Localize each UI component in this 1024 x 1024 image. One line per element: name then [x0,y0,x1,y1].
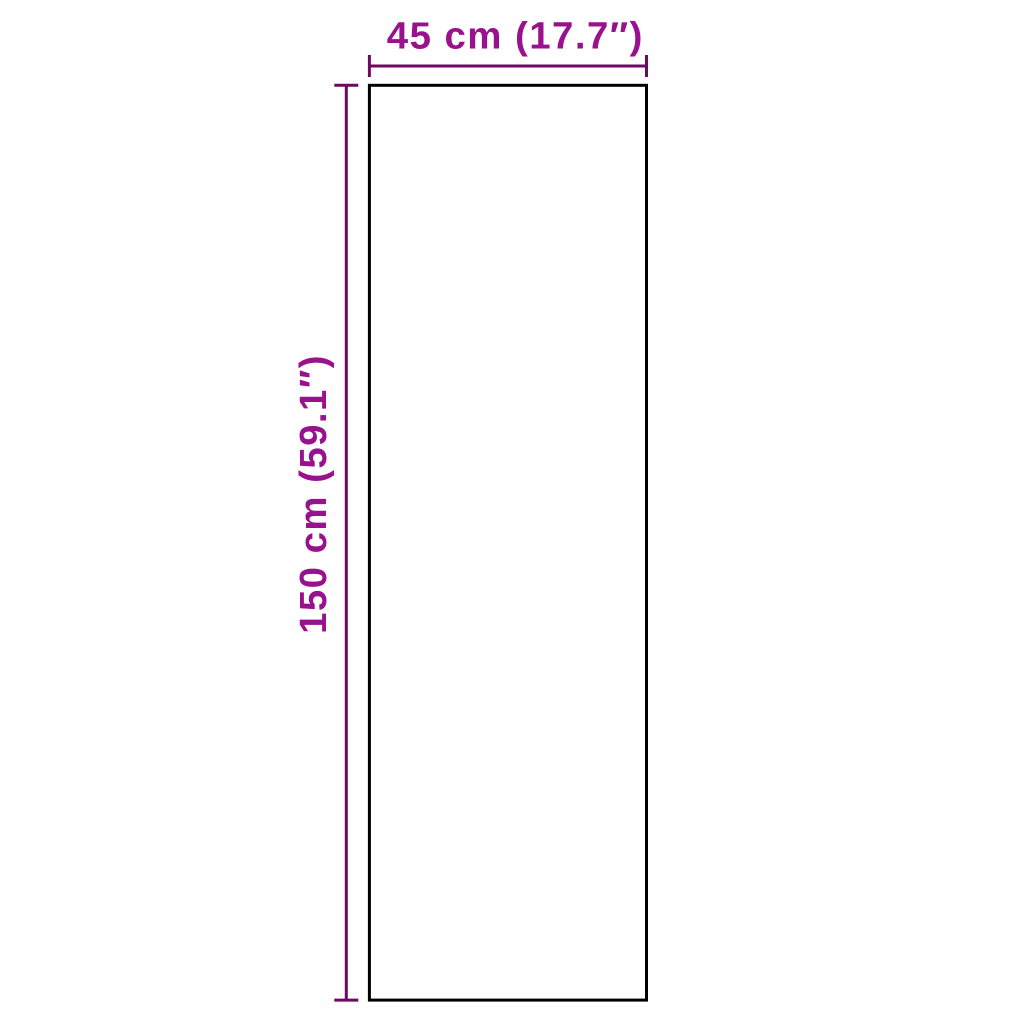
svg-text:45 cm (17.7″): 45 cm (17.7″) [387,15,644,58]
svg-text:150 cm (59.1″): 150 cm (59.1″) [292,354,335,634]
